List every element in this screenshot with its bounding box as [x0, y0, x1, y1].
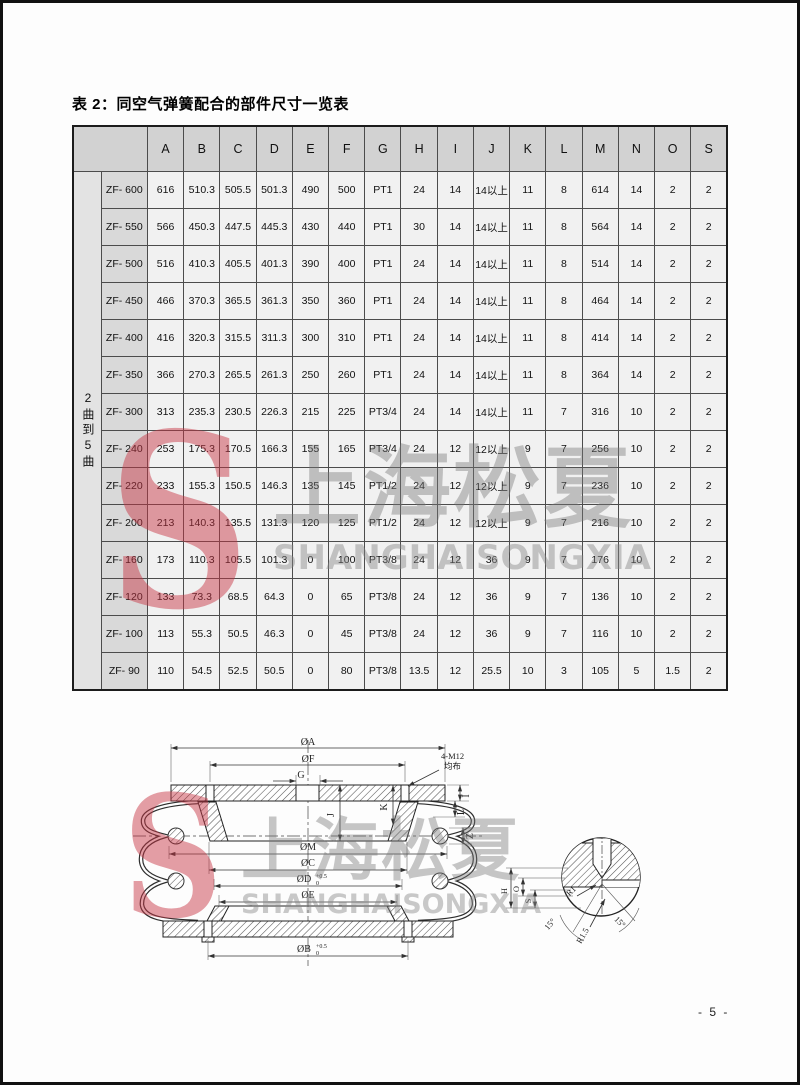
value-cell: 14: [618, 283, 654, 320]
dia-b-tolerance-sup: +0.5: [316, 944, 327, 950]
value-cell: 464: [582, 283, 618, 320]
o-label: O: [511, 886, 521, 892]
value-cell: 113: [147, 616, 183, 653]
value-cell: 166.3: [256, 431, 292, 468]
value-cell: 10: [510, 653, 546, 691]
value-cell: 416: [147, 320, 183, 357]
col-header: D: [256, 126, 292, 172]
value-cell: 213: [147, 505, 183, 542]
value-cell: 14: [437, 246, 473, 283]
value-cell: 2: [655, 209, 691, 246]
value-cell: 400: [329, 246, 365, 283]
value-cell: 135: [292, 468, 328, 505]
value-cell: 8: [546, 246, 582, 283]
value-cell: 11: [510, 246, 546, 283]
value-cell: 12以上: [473, 431, 509, 468]
value-cell: 0: [292, 616, 328, 653]
value-cell: 233: [147, 468, 183, 505]
value-cell: 8: [546, 320, 582, 357]
l-label: L: [456, 809, 467, 815]
value-cell: 315.5: [220, 320, 256, 357]
value-cell: 2: [691, 357, 727, 394]
value-cell: PT1: [365, 283, 401, 320]
value-cell: 36: [473, 542, 509, 579]
value-cell: 12: [437, 505, 473, 542]
value-cell: 14: [437, 209, 473, 246]
value-cell: 2: [655, 468, 691, 505]
bolt-hole: [206, 785, 214, 801]
value-cell: 350: [292, 283, 328, 320]
value-cell: 0: [292, 653, 328, 691]
bolt-note-line1: 4-M12: [441, 751, 464, 761]
value-cell: 24: [401, 283, 437, 320]
dia-a-label: ØA: [301, 737, 316, 748]
value-cell: 270.3: [184, 357, 220, 394]
value-cell: 7: [546, 394, 582, 431]
value-cell: 2: [691, 172, 727, 209]
col-header: K: [510, 126, 546, 172]
value-cell: 316: [582, 394, 618, 431]
col-header: E: [292, 126, 328, 172]
value-cell: 2: [655, 505, 691, 542]
i-label: I: [461, 794, 472, 797]
dia-c-label: ØC: [301, 858, 315, 869]
value-cell: 8: [546, 357, 582, 394]
value-cell: 110: [147, 653, 183, 691]
value-cell: PT3/4: [365, 394, 401, 431]
col-header: B: [184, 126, 220, 172]
value-cell: 24: [401, 579, 437, 616]
value-cell: 2: [655, 283, 691, 320]
value-cell: 24: [401, 616, 437, 653]
value-cell: 501.3: [256, 172, 292, 209]
value-cell: 176: [582, 542, 618, 579]
table-row: ZF- 220233155.3150.5146.3135145PT1/22412…: [73, 468, 727, 505]
value-cell: PT1: [365, 209, 401, 246]
value-cell: PT3/8: [365, 653, 401, 691]
value-cell: 216: [582, 505, 618, 542]
value-cell: 361.3: [256, 283, 292, 320]
value-cell: 52.5: [220, 653, 256, 691]
air-inlet-hole: [296, 785, 319, 801]
value-cell: 30: [401, 209, 437, 246]
bolt-hole: [404, 921, 412, 937]
table-row: ZF- 550566450.3447.5445.3430440PT1301414…: [73, 209, 727, 246]
value-cell: 116: [582, 616, 618, 653]
col-header: S: [691, 126, 727, 172]
value-cell: 2: [691, 542, 727, 579]
value-cell: 215: [292, 394, 328, 431]
value-cell: 50.5: [256, 653, 292, 691]
value-cell: 320.3: [184, 320, 220, 357]
table-row: ZF- 350366270.3265.5261.3250260PT1241414…: [73, 357, 727, 394]
value-cell: 14: [618, 172, 654, 209]
value-cell: 10: [618, 505, 654, 542]
value-cell: 24: [401, 394, 437, 431]
detail-circle-view: H O S R1 R1.5 15° 15°: [499, 830, 646, 945]
value-cell: 14: [618, 209, 654, 246]
value-cell: 7: [546, 542, 582, 579]
value-cell: 614: [582, 172, 618, 209]
page-number: - 5 -: [698, 1005, 729, 1019]
value-cell: 65: [329, 579, 365, 616]
value-cell: PT1: [365, 246, 401, 283]
s-label: S: [523, 898, 533, 903]
value-cell: 2: [691, 505, 727, 542]
col-header: A: [147, 126, 183, 172]
value-cell: PT3/8: [365, 542, 401, 579]
value-cell: 5: [618, 653, 654, 691]
value-cell: 450.3: [184, 209, 220, 246]
value-cell: 14: [618, 246, 654, 283]
value-cell: 414: [582, 320, 618, 357]
value-cell: 11: [510, 394, 546, 431]
col-header: G: [365, 126, 401, 172]
value-cell: 366: [147, 357, 183, 394]
value-cell: 50.5: [220, 616, 256, 653]
value-cell: 25.5: [473, 653, 509, 691]
air-spring-drawing: ØA ØF G 4-M12 均布 I L Z J K ØM ØC ØD +0.5…: [103, 718, 723, 998]
value-cell: 12: [437, 579, 473, 616]
value-cell: 8: [546, 209, 582, 246]
value-cell: 14: [618, 320, 654, 357]
value-cell: 564: [582, 209, 618, 246]
value-cell: 155: [292, 431, 328, 468]
model-cell: ZF- 240: [101, 431, 147, 468]
value-cell: 10: [618, 579, 654, 616]
value-cell: 9: [510, 579, 546, 616]
table-row: ZF- 240253175.3170.5166.3155165PT3/42412…: [73, 431, 727, 468]
angle-left-label: 15°: [542, 916, 557, 932]
dims-table: A B C D E F G H I J K L M N O S: [72, 125, 728, 691]
dims-table-wrap: A B C D E F G H I J K L M N O S: [72, 125, 728, 691]
value-cell: 110.3: [184, 542, 220, 579]
value-cell: 10: [618, 616, 654, 653]
dia-b-label: ØB: [297, 944, 311, 955]
table-row: ZF- 9011054.552.550.5080PT3/813.51225.51…: [73, 653, 727, 691]
value-cell: 24: [401, 505, 437, 542]
value-cell: 11: [510, 172, 546, 209]
col-header: O: [655, 126, 691, 172]
value-cell: 410.3: [184, 246, 220, 283]
value-cell: 9: [510, 431, 546, 468]
value-cell: 0: [292, 579, 328, 616]
value-cell: 46.3: [256, 616, 292, 653]
value-cell: 405.5: [220, 246, 256, 283]
value-cell: 1.5: [655, 653, 691, 691]
table-row: ZF- 160173110.3105.5101.30100PT3/8241236…: [73, 542, 727, 579]
value-cell: 616: [147, 172, 183, 209]
value-cell: 500: [329, 172, 365, 209]
model-cell: ZF- 350: [101, 357, 147, 394]
value-cell: 14以上: [473, 246, 509, 283]
value-cell: 120: [292, 505, 328, 542]
col-header: I: [437, 126, 473, 172]
value-cell: PT1/2: [365, 468, 401, 505]
value-cell: 11: [510, 357, 546, 394]
value-cell: 505.5: [220, 172, 256, 209]
h-label: H: [499, 888, 509, 894]
value-cell: 150.5: [220, 468, 256, 505]
value-cell: 140.3: [184, 505, 220, 542]
bolt-hole: [401, 785, 409, 801]
table-row: ZF- 500516410.3405.5401.3390400PT1241414…: [73, 246, 727, 283]
dia-m-label: ØM: [300, 842, 316, 853]
value-cell: 12以上: [473, 468, 509, 505]
model-cell: ZF- 600: [101, 172, 147, 209]
value-cell: 8: [546, 283, 582, 320]
value-cell: 13.5: [401, 653, 437, 691]
value-cell: PT1: [365, 172, 401, 209]
value-cell: 3: [546, 653, 582, 691]
model-cell: ZF- 160: [101, 542, 147, 579]
value-cell: 170.5: [220, 431, 256, 468]
value-cell: 24: [401, 542, 437, 579]
header-blank-cell: [73, 126, 147, 172]
value-cell: 2: [655, 246, 691, 283]
value-cell: 9: [510, 616, 546, 653]
row-group-cell: 2曲到5曲: [73, 172, 101, 691]
value-cell: 105: [582, 653, 618, 691]
value-cell: 14以上: [473, 394, 509, 431]
value-cell: 260: [329, 357, 365, 394]
dia-b-tolerance-sub: 0: [316, 951, 319, 957]
value-cell: 55.3: [184, 616, 220, 653]
value-cell: PT3/8: [365, 616, 401, 653]
value-cell: 10: [618, 431, 654, 468]
value-cell: 24: [401, 246, 437, 283]
model-cell: ZF- 100: [101, 616, 147, 653]
value-cell: 135.5: [220, 505, 256, 542]
value-cell: 80: [329, 653, 365, 691]
value-cell: 12: [437, 542, 473, 579]
value-cell: 2: [691, 468, 727, 505]
value-cell: 236: [582, 468, 618, 505]
value-cell: 253: [147, 431, 183, 468]
table-row: ZF- 450466370.3365.5361.3350360PT1241414…: [73, 283, 727, 320]
value-cell: 7: [546, 579, 582, 616]
value-cell: 300: [292, 320, 328, 357]
value-cell: 256: [582, 431, 618, 468]
value-cell: 261.3: [256, 357, 292, 394]
model-cell: ZF- 200: [101, 505, 147, 542]
value-cell: 36: [473, 579, 509, 616]
dia-d-label: ØD: [297, 874, 311, 885]
value-cell: 2: [691, 616, 727, 653]
value-cell: PT1: [365, 357, 401, 394]
model-cell: ZF- 300: [101, 394, 147, 431]
value-cell: 7: [546, 431, 582, 468]
value-cell: 2: [655, 431, 691, 468]
value-cell: PT1/2: [365, 505, 401, 542]
value-cell: 9: [510, 505, 546, 542]
document-page: 表 2：同空气弹簧配合的部件尺寸一览表 A B C D E F: [0, 0, 800, 1085]
value-cell: 146.3: [256, 468, 292, 505]
value-cell: 7: [546, 505, 582, 542]
value-cell: 173: [147, 542, 183, 579]
value-cell: 2: [655, 172, 691, 209]
table-row: ZF- 400416320.3315.5311.3300310PT1241414…: [73, 320, 727, 357]
table-row: ZF- 12013373.368.564.3065PT3/82412369713…: [73, 579, 727, 616]
col-header: J: [473, 126, 509, 172]
value-cell: 225: [329, 394, 365, 431]
value-cell: 401.3: [256, 246, 292, 283]
k-label: K: [379, 803, 390, 811]
value-cell: 14: [618, 357, 654, 394]
value-cell: 2: [655, 320, 691, 357]
dia-e-label: ØE: [301, 890, 314, 901]
value-cell: 36: [473, 616, 509, 653]
r1-5-label: R1.5: [574, 926, 591, 945]
col-header: L: [546, 126, 582, 172]
value-cell: 390: [292, 246, 328, 283]
value-cell: 0: [292, 542, 328, 579]
value-cell: 64.3: [256, 579, 292, 616]
value-cell: 24: [401, 172, 437, 209]
value-cell: 131.3: [256, 505, 292, 542]
value-cell: 7: [546, 616, 582, 653]
value-cell: 14以上: [473, 320, 509, 357]
g-label: G: [297, 770, 304, 781]
value-cell: 14: [437, 283, 473, 320]
bolt-note-line2: 均布: [444, 761, 461, 771]
value-cell: 2: [655, 579, 691, 616]
value-cell: 311.3: [256, 320, 292, 357]
value-cell: 100: [329, 542, 365, 579]
value-cell: 10: [618, 542, 654, 579]
model-cell: ZF- 90: [101, 653, 147, 691]
value-cell: 24: [401, 468, 437, 505]
value-cell: 466: [147, 283, 183, 320]
value-cell: 24: [401, 320, 437, 357]
value-cell: 2: [691, 283, 727, 320]
model-cell: ZF- 220: [101, 468, 147, 505]
value-cell: 313: [147, 394, 183, 431]
value-cell: 2: [655, 542, 691, 579]
value-cell: 155.3: [184, 468, 220, 505]
value-cell: 11: [510, 320, 546, 357]
value-cell: 136: [582, 579, 618, 616]
table-row: 2曲到5曲ZF- 600616510.3505.5501.3490500PT12…: [73, 172, 727, 209]
col-header: F: [329, 126, 365, 172]
value-cell: 2: [655, 616, 691, 653]
value-cell: 447.5: [220, 209, 256, 246]
dia-d-tolerance-sub: 0: [316, 881, 319, 887]
value-cell: 73.3: [184, 579, 220, 616]
value-cell: 54.5: [184, 653, 220, 691]
value-cell: 14以上: [473, 357, 509, 394]
value-cell: 9: [510, 468, 546, 505]
model-cell: ZF- 500: [101, 246, 147, 283]
value-cell: 365.5: [220, 283, 256, 320]
value-cell: 45: [329, 616, 365, 653]
header-row: A B C D E F G H I J K L M N O S: [73, 126, 727, 172]
value-cell: 516: [147, 246, 183, 283]
bolt-hole: [204, 921, 212, 937]
col-header: M: [582, 126, 618, 172]
value-cell: 566: [147, 209, 183, 246]
col-header: N: [618, 126, 654, 172]
value-cell: 24: [401, 357, 437, 394]
value-cell: 14: [437, 320, 473, 357]
value-cell: PT3/8: [365, 579, 401, 616]
model-cell: ZF- 120: [101, 579, 147, 616]
value-cell: 8: [546, 172, 582, 209]
value-cell: 175.3: [184, 431, 220, 468]
value-cell: 7: [546, 468, 582, 505]
table-row: ZF- 200213140.3135.5131.3120125PT1/22412…: [73, 505, 727, 542]
page-title: 表 2：同空气弹簧配合的部件尺寸一览表: [72, 93, 349, 114]
value-cell: 250: [292, 357, 328, 394]
dia-f-label: ØF: [302, 754, 315, 765]
value-cell: 9: [510, 542, 546, 579]
value-cell: 12: [437, 653, 473, 691]
value-cell: 12: [437, 468, 473, 505]
value-cell: 14: [437, 394, 473, 431]
value-cell: 235.3: [184, 394, 220, 431]
table-row: ZF- 300313235.3230.5226.3215225PT3/42414…: [73, 394, 727, 431]
value-cell: 11: [510, 209, 546, 246]
value-cell: 2: [691, 431, 727, 468]
col-header: C: [220, 126, 256, 172]
value-cell: 10: [618, 468, 654, 505]
j-label: J: [326, 813, 337, 817]
value-cell: 2: [691, 320, 727, 357]
value-cell: 430: [292, 209, 328, 246]
value-cell: 125: [329, 505, 365, 542]
value-cell: 68.5: [220, 579, 256, 616]
table-row: ZF- 10011355.350.546.3045PT3/82412369711…: [73, 616, 727, 653]
value-cell: 445.3: [256, 209, 292, 246]
model-cell: ZF- 400: [101, 320, 147, 357]
value-cell: 11: [510, 283, 546, 320]
value-cell: 165: [329, 431, 365, 468]
value-cell: 226.3: [256, 394, 292, 431]
value-cell: 370.3: [184, 283, 220, 320]
value-cell: 490: [292, 172, 328, 209]
value-cell: 510.3: [184, 172, 220, 209]
value-cell: 2: [691, 209, 727, 246]
value-cell: 10: [618, 394, 654, 431]
col-header: H: [401, 126, 437, 172]
value-cell: 2: [691, 579, 727, 616]
value-cell: 24: [401, 431, 437, 468]
value-cell: 2: [655, 394, 691, 431]
value-cell: 514: [582, 246, 618, 283]
value-cell: 12: [437, 431, 473, 468]
value-cell: 12: [437, 616, 473, 653]
value-cell: 14以上: [473, 209, 509, 246]
value-cell: 440: [329, 209, 365, 246]
value-cell: 265.5: [220, 357, 256, 394]
dia-d-tolerance-sup: +0.5: [316, 874, 327, 880]
value-cell: 133: [147, 579, 183, 616]
z-label: Z: [465, 833, 476, 839]
value-cell: 145: [329, 468, 365, 505]
value-cell: 2: [691, 653, 727, 691]
model-cell: ZF- 450: [101, 283, 147, 320]
value-cell: PT3/4: [365, 431, 401, 468]
value-cell: 230.5: [220, 394, 256, 431]
value-cell: 14以上: [473, 283, 509, 320]
value-cell: 14: [437, 172, 473, 209]
value-cell: 14: [437, 357, 473, 394]
model-cell: ZF- 550: [101, 209, 147, 246]
table-body: 2曲到5曲ZF- 600616510.3505.5501.3490500PT12…: [73, 172, 727, 691]
value-cell: 2: [691, 394, 727, 431]
value-cell: 101.3: [256, 542, 292, 579]
row-group-label: 2曲到5曲: [81, 391, 94, 470]
